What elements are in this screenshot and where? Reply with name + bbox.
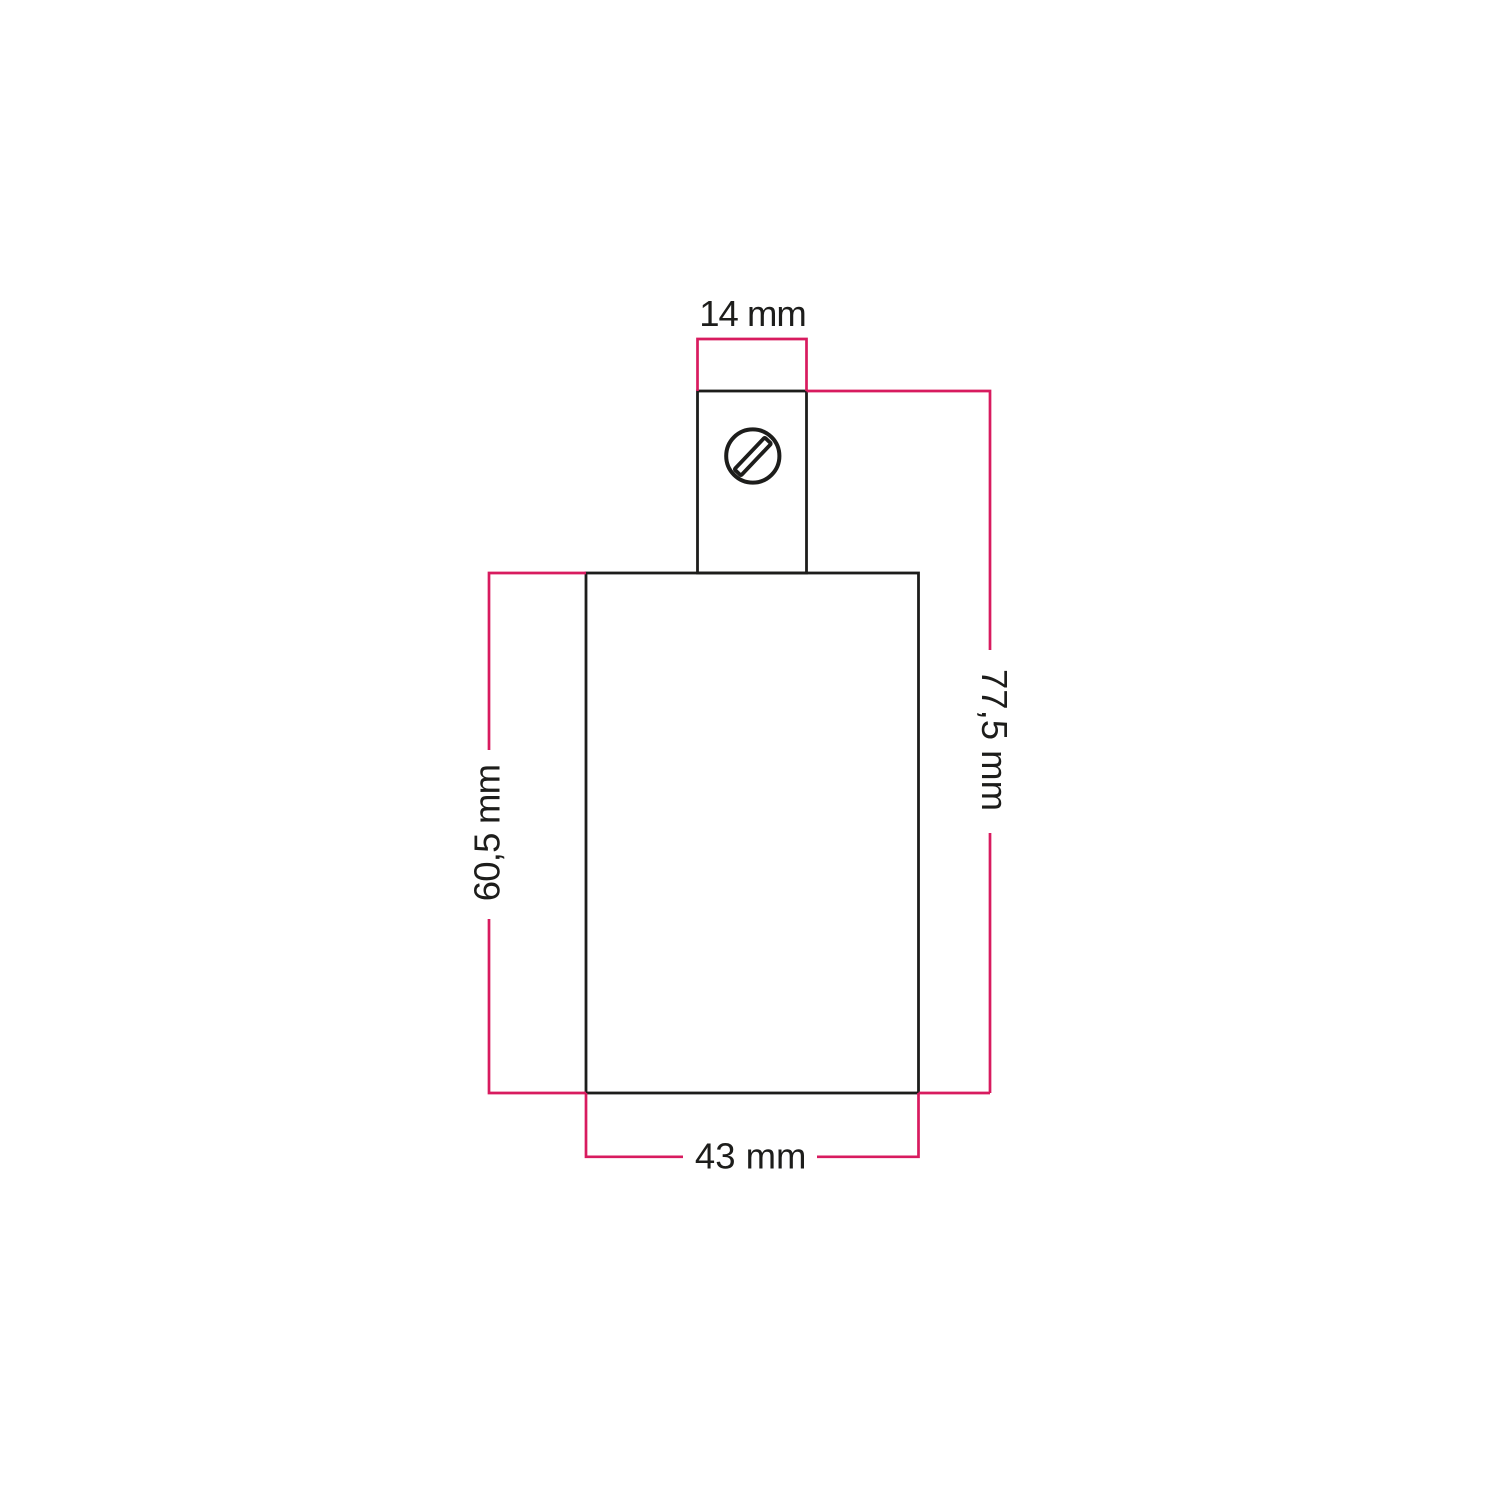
svg-text:43 mm: 43 mm (695, 1136, 807, 1177)
svg-text:14 mm: 14 mm (699, 293, 806, 334)
svg-text:60,5 mm: 60,5 mm (467, 765, 508, 901)
svg-text:77,5 mm: 77,5 mm (974, 669, 1015, 811)
